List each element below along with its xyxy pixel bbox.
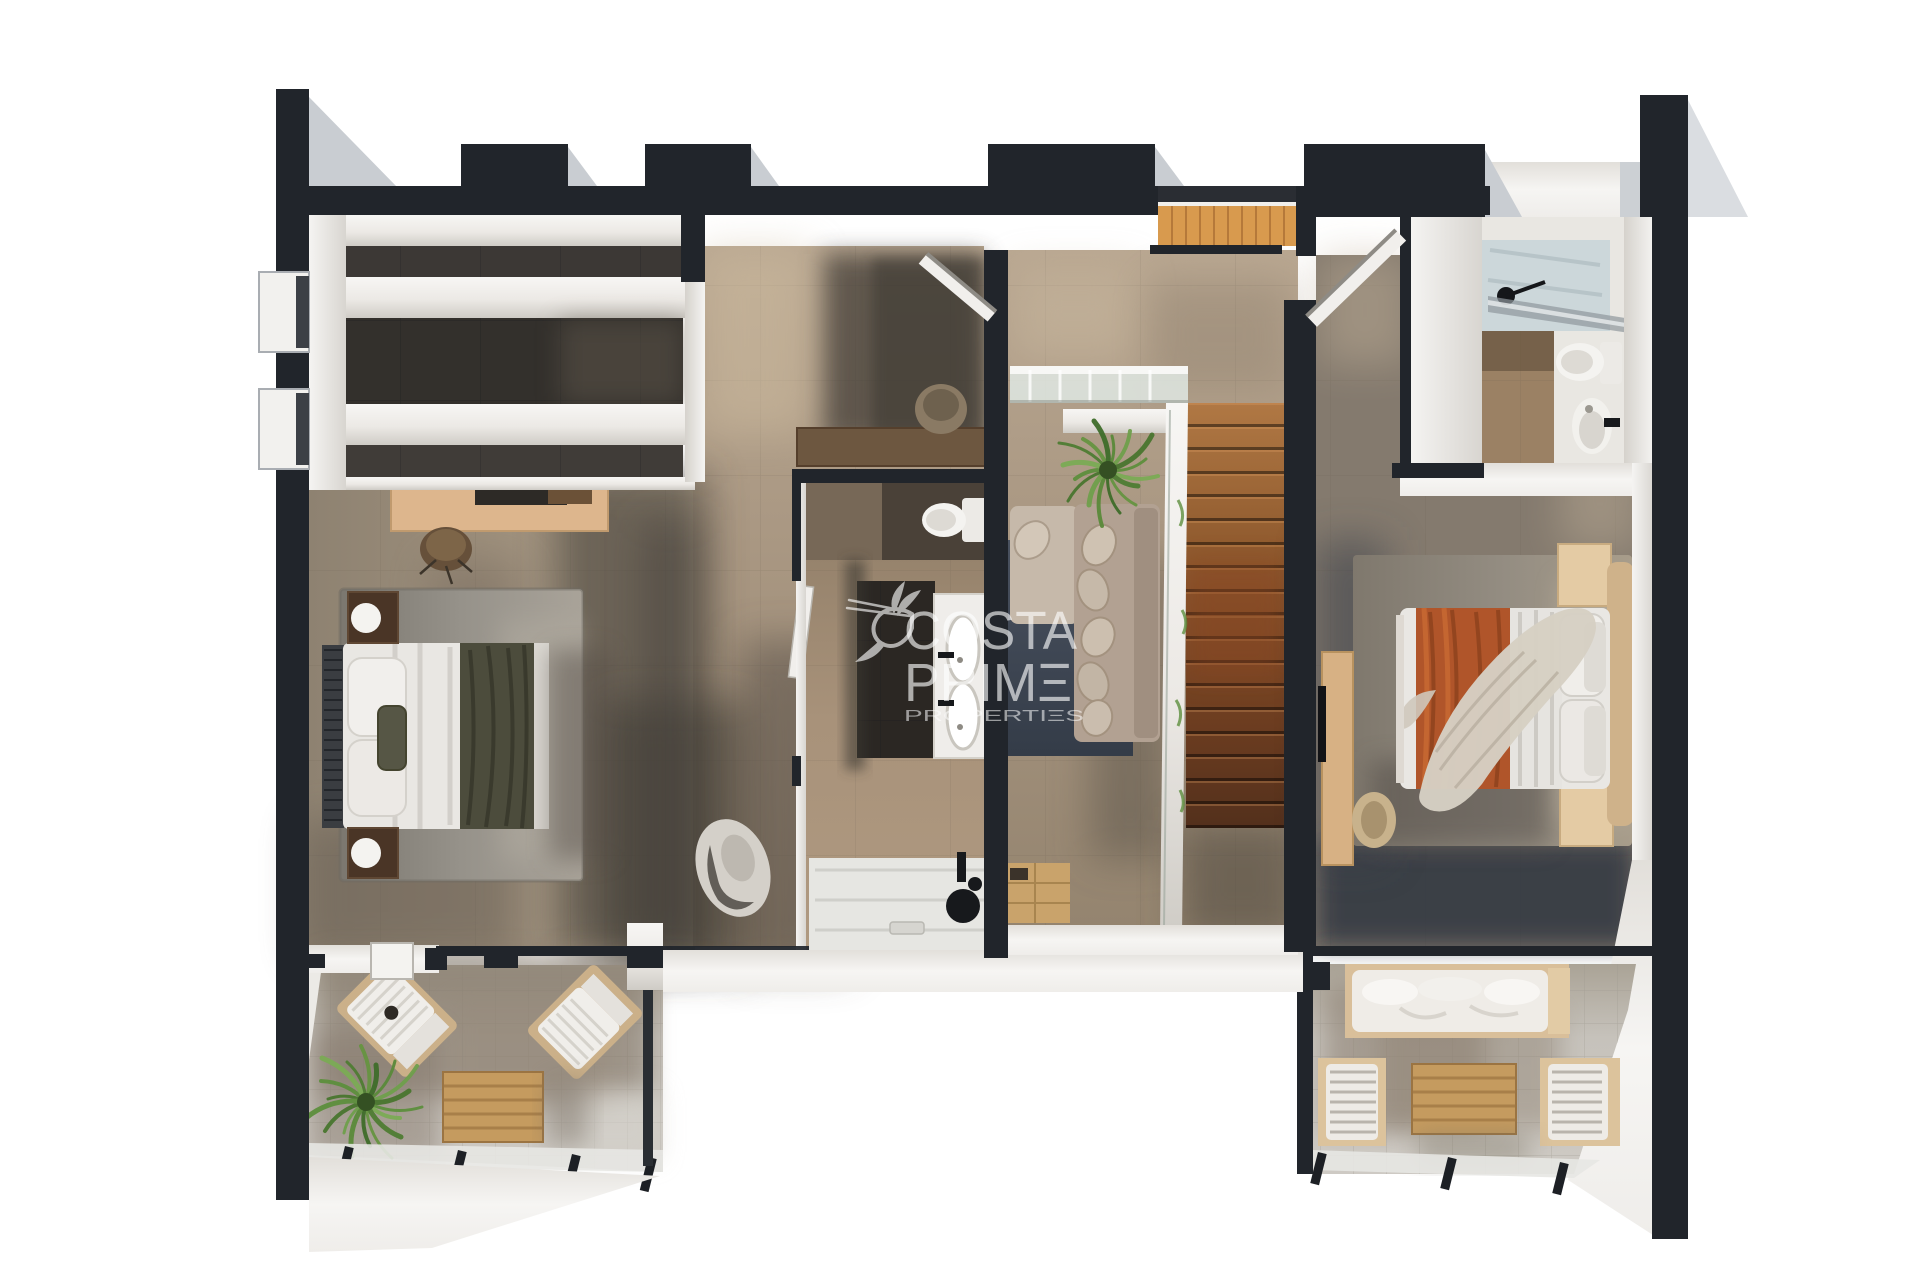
- svg-text:PROPERTIΞS: PROPERTIΞS: [904, 708, 1084, 725]
- svg-text:COSTA: COSTA: [904, 601, 1077, 661]
- svg-text:PRIMΞ: PRIMΞ: [904, 653, 1072, 713]
